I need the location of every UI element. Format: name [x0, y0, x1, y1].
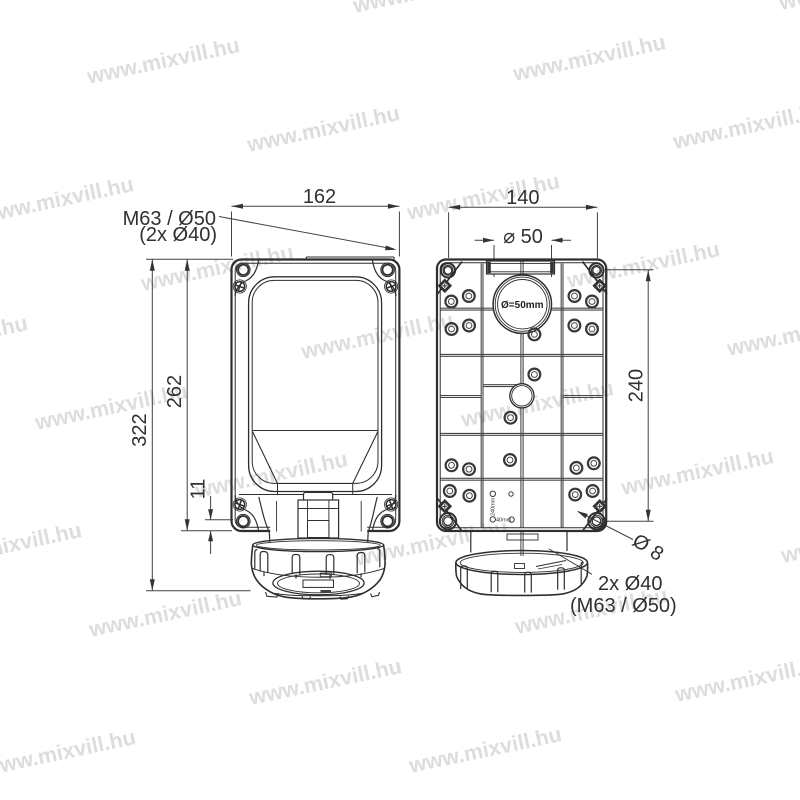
- svg-text:240mm: 240mm: [491, 497, 497, 516]
- svg-text:162: 162: [303, 186, 336, 208]
- svg-text:11: 11: [188, 479, 210, 500]
- svg-text:322: 322: [129, 413, 151, 446]
- svg-text:140: 140: [506, 187, 539, 209]
- svg-text:⌀ 50: ⌀ 50: [503, 226, 543, 248]
- svg-text:240: 240: [626, 369, 648, 402]
- svg-text:(M63 / Ø50): (M63 / Ø50): [570, 595, 677, 617]
- svg-text:2x Ø40: 2x Ø40: [598, 573, 662, 595]
- svg-text:40mm: 40mm: [496, 518, 512, 524]
- svg-text:Ø=50mm: Ø=50mm: [501, 300, 544, 311]
- svg-text:262: 262: [164, 375, 186, 408]
- svg-text:(2x Ø40): (2x Ø40): [139, 224, 217, 246]
